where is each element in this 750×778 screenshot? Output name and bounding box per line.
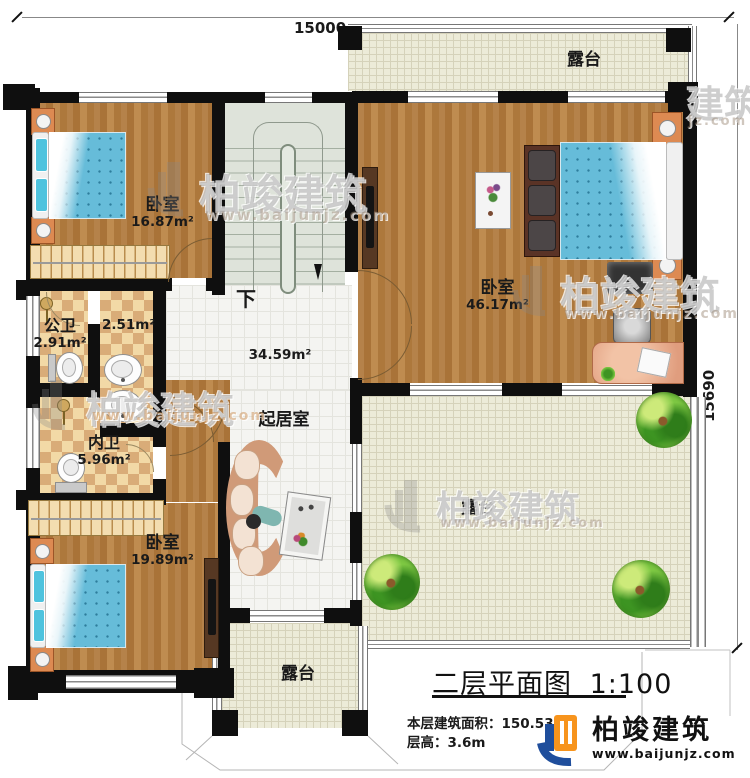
sofa-cushion xyxy=(238,546,264,576)
person-head xyxy=(246,514,261,529)
window xyxy=(568,91,665,103)
wall xyxy=(683,90,697,397)
terrace-column xyxy=(338,26,362,50)
wall xyxy=(26,278,172,291)
terrace-column xyxy=(666,28,691,52)
window xyxy=(562,385,652,396)
watermark-logo-icon xyxy=(382,476,432,536)
watermark-logo-icon xyxy=(510,262,556,320)
watermark: 柏竣建筑 www.baijunjz.com xyxy=(30,376,76,438)
room-name: 公卫 xyxy=(28,317,92,336)
wall xyxy=(498,91,568,103)
terrace-door xyxy=(352,444,362,512)
window xyxy=(66,675,176,689)
watermark-text: 柏竣建筑 xyxy=(86,380,234,434)
wall xyxy=(324,608,358,623)
laptop xyxy=(637,347,672,378)
floor-area-label: 本层建筑面积： xyxy=(407,716,502,732)
wall xyxy=(350,378,362,444)
window xyxy=(352,563,362,600)
window xyxy=(408,91,498,103)
wall xyxy=(16,280,26,300)
wardrobe xyxy=(28,500,164,536)
wall xyxy=(35,92,79,103)
brand-name: 柏竣建筑 xyxy=(592,708,712,747)
wall xyxy=(350,512,362,563)
floor-plan-canvas: 15000 15690 xyxy=(0,0,750,778)
coffee-table xyxy=(279,491,331,561)
brand-logo-icon xyxy=(529,709,589,771)
terrace-column xyxy=(212,710,238,736)
terrace-label: 露台 xyxy=(556,50,612,70)
sofa-cushion xyxy=(234,450,260,480)
floor-height-label: 层高： xyxy=(407,735,448,751)
watermark-url: www.baijunjz.com xyxy=(440,516,605,531)
watermark-url: www.baijunjz.com xyxy=(564,306,739,322)
wall xyxy=(352,91,408,103)
room-label: 内卫 5.96m² xyxy=(72,434,136,469)
watermark: 柏竣建筑 www.baijunjz.com xyxy=(382,476,432,540)
stair-down-label: 下 xyxy=(236,288,256,312)
wall xyxy=(225,92,265,103)
window xyxy=(250,610,324,622)
nightstand xyxy=(652,112,682,145)
window xyxy=(410,385,502,396)
room-area: 5.96m² xyxy=(72,453,136,469)
title-underline xyxy=(432,695,626,698)
terrace-column xyxy=(342,710,368,736)
watermark: 柏竣建筑 www.baijunjz.com xyxy=(145,158,195,224)
wall xyxy=(362,383,410,396)
room-name: 内卫 xyxy=(72,434,136,453)
room-area: 19.89m² xyxy=(105,553,220,569)
room-area: 2.91m² xyxy=(28,336,92,352)
nightstand xyxy=(30,646,54,672)
watermark-url: jz.com xyxy=(688,114,747,129)
watermark-url: www.baijunjz.com xyxy=(92,408,267,424)
room-label: 卧室 19.89m² xyxy=(105,533,220,569)
wall xyxy=(502,383,562,396)
watermark-logo-icon xyxy=(30,376,76,434)
stair-down-arrow-icon xyxy=(314,264,322,280)
watermark-logo-icon xyxy=(145,158,195,220)
toilet-tank xyxy=(55,482,87,493)
wall xyxy=(16,490,26,510)
nightstand xyxy=(30,538,54,564)
nightstand xyxy=(31,108,55,135)
tv-cabinet xyxy=(204,558,219,658)
room-label: 公卫 2.91m² xyxy=(28,317,92,352)
room-name: 卧室 xyxy=(105,533,220,553)
watermark: 柏竣建筑 www.baijunjz.com xyxy=(510,262,556,324)
brand-url: www.baijunjz.com xyxy=(592,746,736,761)
bed xyxy=(560,142,683,260)
bed xyxy=(30,564,126,648)
window xyxy=(265,92,312,103)
terrace-label: 露台 xyxy=(270,664,326,684)
nightstand xyxy=(31,217,55,244)
floor-height-line: 层高：3.6m xyxy=(407,731,485,751)
tree xyxy=(636,392,692,448)
room-area: 2.51m² xyxy=(102,318,154,334)
side-table xyxy=(475,172,511,229)
wall xyxy=(210,668,224,696)
plant xyxy=(601,367,615,381)
wardrobe xyxy=(30,245,170,279)
watermark-url: www.baijunjz.com xyxy=(205,206,390,224)
desk xyxy=(592,342,684,384)
flowers xyxy=(484,181,502,203)
floor-height-value: 3.6m xyxy=(448,735,486,751)
tree xyxy=(612,560,670,618)
window xyxy=(79,92,167,103)
bed-end-bench xyxy=(524,145,560,257)
room-area: 34.59m² xyxy=(244,348,316,364)
sofa-cushion xyxy=(230,484,254,516)
tree xyxy=(364,554,420,610)
table-flowers xyxy=(291,531,309,549)
